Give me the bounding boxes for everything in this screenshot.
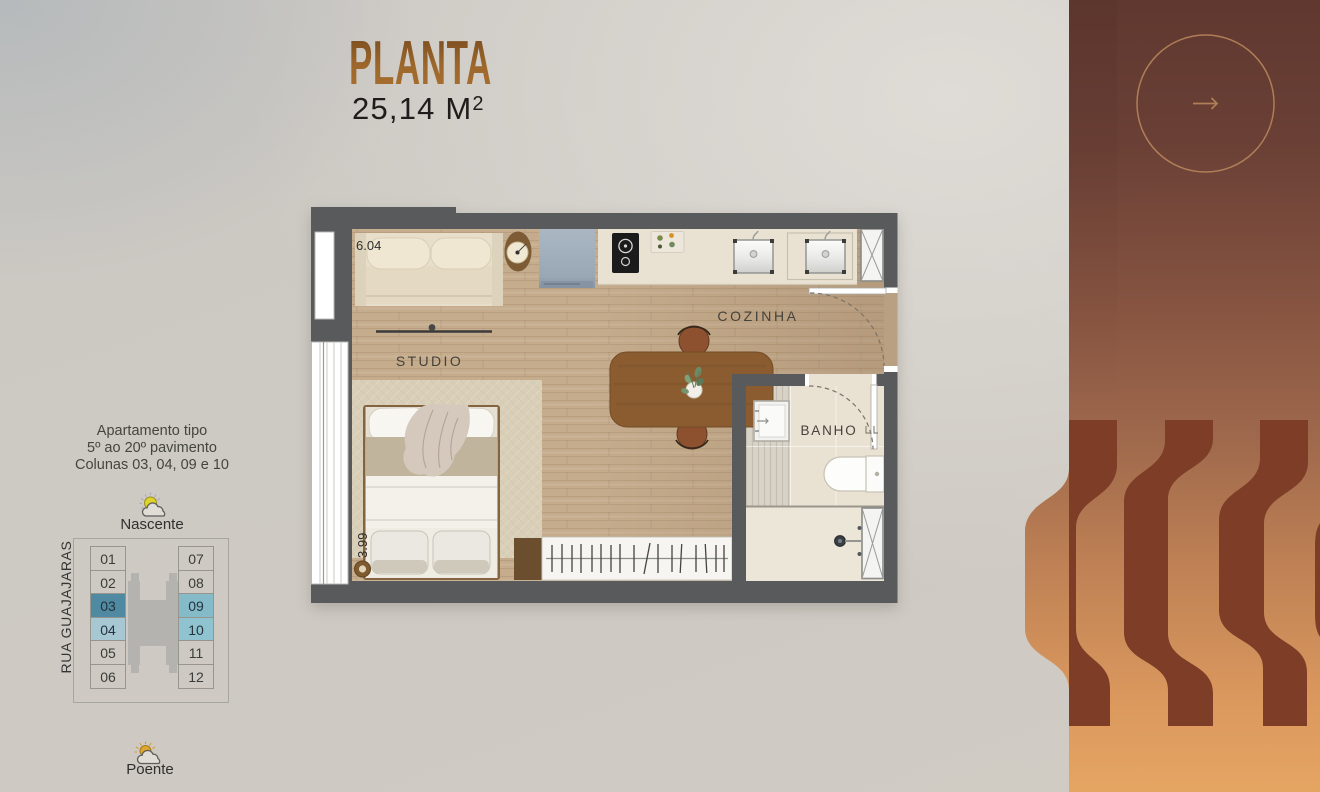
- svg-text:6.04: 6.04: [356, 238, 381, 253]
- svg-text:STUDIO: STUDIO: [396, 353, 463, 369]
- svg-text:COZINHA: COZINHA: [717, 308, 798, 324]
- svg-text:3.99: 3.99: [355, 533, 370, 558]
- svg-text:BANHO: BANHO: [800, 423, 857, 438]
